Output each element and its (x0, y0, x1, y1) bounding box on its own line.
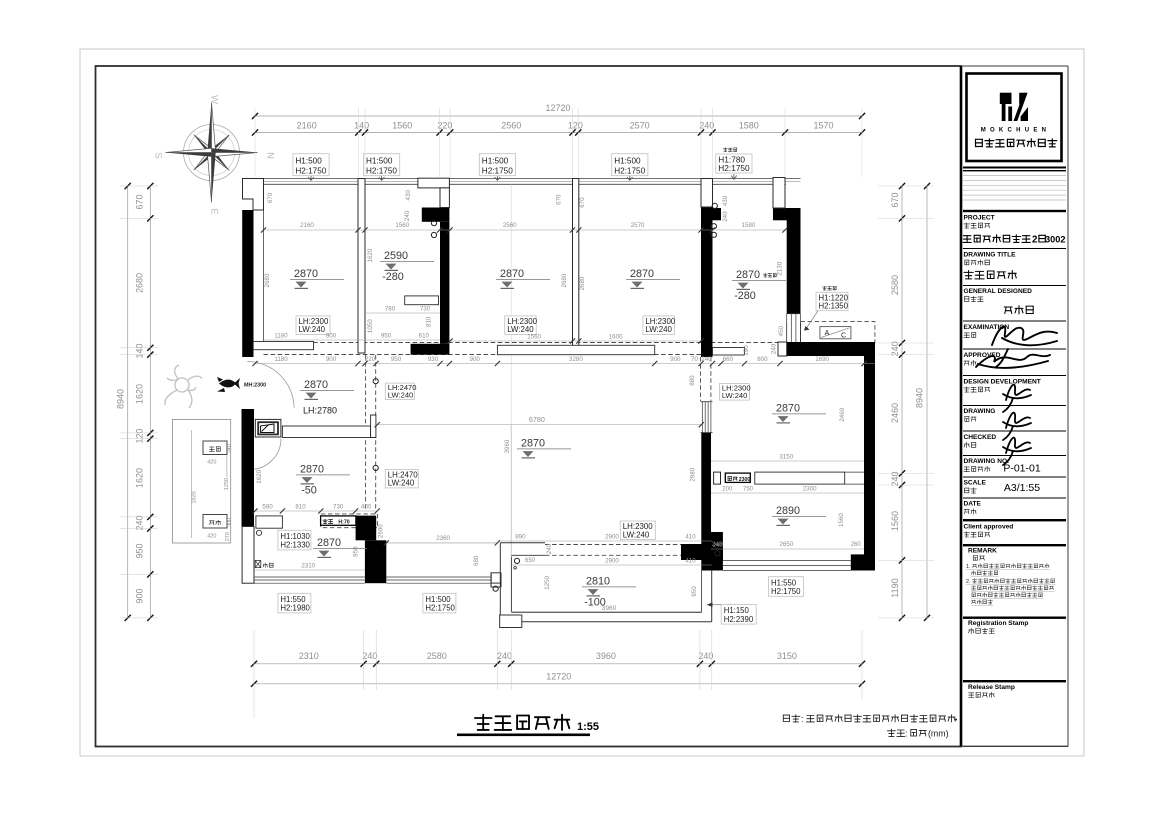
svg-text:H1:500: H1:500 (482, 157, 509, 166)
svg-text:70: 70 (691, 356, 698, 363)
svg-text:240: 240 (713, 543, 724, 549)
svg-text:900: 900 (470, 356, 481, 363)
svg-text:140: 140 (354, 121, 369, 131)
svg-text:H2:1750: H2:1750 (482, 167, 513, 176)
svg-text:2310: 2310 (299, 651, 319, 661)
svg-text:LW:240: LW:240 (645, 325, 672, 334)
svg-text:670: 670 (579, 197, 586, 208)
svg-text:1580: 1580 (742, 222, 756, 229)
svg-text:2130: 2130 (776, 261, 783, 275)
svg-text:1820: 1820 (192, 491, 198, 503)
svg-text:H2:1750: H2:1750 (366, 167, 397, 176)
svg-text:H1:500: H1:500 (295, 157, 322, 166)
svg-text:H1:150: H1:150 (724, 606, 750, 615)
svg-text:2: 2 (1032, 235, 1038, 246)
svg-text:680: 680 (473, 555, 480, 566)
svg-text:2570: 2570 (631, 222, 645, 229)
svg-text:3150: 3150 (779, 453, 793, 460)
svg-text:DRAWING NO.: DRAWING NO. (964, 458, 1010, 465)
svg-text:900: 900 (326, 332, 337, 339)
svg-text:W: W (209, 95, 220, 104)
svg-text:2680: 2680 (561, 273, 568, 287)
svg-text:1580: 1580 (739, 121, 759, 131)
svg-text::: : (905, 729, 907, 739)
svg-text:1:55: 1:55 (577, 721, 599, 733)
svg-text:240: 240 (227, 444, 233, 453)
svg-text:LW:240: LW:240 (722, 391, 747, 400)
svg-text:2560: 2560 (501, 121, 521, 131)
svg-text:1560: 1560 (838, 513, 845, 527)
svg-text:410: 410 (685, 557, 696, 564)
svg-text:2.: 2. (966, 579, 971, 585)
svg-text:950: 950 (352, 546, 359, 557)
svg-text:N: N (265, 152, 276, 159)
svg-text:3150: 3150 (777, 651, 797, 661)
svg-text:1190: 1190 (890, 578, 900, 597)
svg-text:H:70: H:70 (338, 520, 349, 526)
svg-text:(mm): (mm) (928, 729, 949, 739)
svg-text:2900: 2900 (605, 533, 619, 540)
svg-text:H2:1750: H2:1750 (614, 167, 645, 176)
svg-text:930: 930 (428, 356, 439, 363)
svg-text:-280: -280 (382, 271, 404, 283)
svg-text:1620: 1620 (367, 248, 374, 262)
svg-text:1560: 1560 (890, 511, 900, 531)
svg-text:240: 240 (722, 211, 729, 222)
svg-text:2870: 2870 (521, 438, 545, 450)
svg-text:400: 400 (361, 503, 372, 510)
svg-text:C: C (841, 333, 846, 340)
svg-text:750: 750 (743, 486, 754, 492)
svg-text:H1:550: H1:550 (771, 578, 797, 587)
svg-text:CHECKED: CHECKED (964, 434, 997, 441)
svg-text:2980: 2980 (689, 467, 696, 481)
svg-text:880: 880 (689, 375, 696, 386)
svg-text:1600: 1600 (609, 333, 623, 340)
svg-text:240: 240 (698, 651, 713, 661)
svg-text:2680: 2680 (264, 273, 271, 287)
svg-text:1050: 1050 (367, 319, 374, 333)
svg-text:2160: 2160 (297, 121, 317, 131)
svg-text:H2:1350: H2:1350 (819, 302, 849, 311)
svg-text:H2:1750: H2:1750 (295, 167, 326, 176)
svg-text:H2:1750: H2:1750 (425, 604, 455, 613)
svg-text:PROJECT: PROJECT (964, 215, 995, 222)
svg-text:900: 900 (670, 356, 681, 363)
svg-text:900: 900 (135, 588, 145, 603)
svg-text:2650: 2650 (779, 541, 793, 548)
svg-text:240: 240 (699, 121, 714, 131)
svg-text:240: 240 (362, 651, 377, 661)
svg-text:2870: 2870 (294, 268, 318, 280)
svg-text:240: 240 (546, 543, 553, 554)
svg-text:H2:1330: H2:1330 (280, 541, 310, 550)
svg-text:H2:2390: H2:2390 (724, 615, 754, 624)
svg-text:H1:550: H1:550 (280, 595, 306, 604)
svg-text:H1:500: H1:500 (366, 157, 393, 166)
svg-text:2590: 2590 (384, 250, 408, 262)
svg-text:H1:500: H1:500 (425, 595, 451, 604)
svg-text:420: 420 (207, 534, 216, 540)
svg-text:2300: 2300 (803, 485, 817, 492)
svg-text:DRAWING TITLE: DRAWING TITLE (964, 252, 1017, 259)
svg-text:12720: 12720 (546, 671, 571, 681)
svg-text:1180: 1180 (274, 356, 288, 363)
svg-text:3960: 3960 (596, 651, 616, 661)
svg-text:2870: 2870 (736, 269, 760, 281)
svg-text:2580: 2580 (427, 651, 447, 661)
svg-text:LW:240: LW:240 (623, 530, 650, 539)
svg-text:Registration Stamp: Registration Stamp (968, 620, 1028, 627)
svg-text:LH:2780: LH:2780 (303, 406, 337, 416)
svg-text:2460: 2460 (890, 403, 900, 423)
svg-text:580: 580 (262, 503, 273, 510)
svg-text:2870: 2870 (500, 268, 524, 280)
svg-text:1.: 1. (966, 564, 971, 570)
svg-text:450: 450 (778, 325, 785, 336)
svg-text::: : (801, 714, 803, 724)
svg-text:200: 200 (722, 486, 733, 492)
svg-text:3280: 3280 (569, 356, 583, 363)
svg-text:1250: 1250 (224, 478, 230, 490)
svg-text:DESIGN DEVELOPMENT: DESIGN DEVELOPMENT (964, 379, 1041, 386)
svg-text:1690: 1690 (815, 356, 829, 363)
svg-text:8940: 8940 (116, 389, 126, 409)
svg-text:2870: 2870 (776, 403, 800, 415)
svg-text:2890: 2890 (776, 505, 800, 517)
svg-text:240: 240 (404, 210, 411, 221)
svg-text:240: 240 (890, 471, 900, 486)
svg-text:H2:1750: H2:1750 (771, 587, 801, 596)
svg-text:LW:240: LW:240 (388, 479, 415, 488)
svg-text:1620: 1620 (135, 468, 145, 488)
svg-text:670: 670 (890, 192, 900, 207)
svg-text:SCALE: SCALE (964, 480, 987, 487)
svg-text:650: 650 (525, 558, 536, 564)
svg-text:-280: -280 (734, 290, 756, 302)
svg-text:240: 240 (890, 341, 900, 356)
svg-text:LW:240: LW:240 (299, 325, 326, 334)
svg-text:E: E (209, 208, 220, 214)
svg-text:2160: 2160 (300, 222, 314, 229)
svg-text:670: 670 (556, 194, 563, 205)
svg-text:730: 730 (420, 305, 431, 312)
svg-text:1620: 1620 (256, 469, 263, 483)
svg-text:260: 260 (851, 542, 862, 548)
svg-text:670: 670 (135, 194, 145, 209)
svg-text:950: 950 (391, 356, 402, 363)
svg-text:2810: 2810 (586, 576, 610, 588)
svg-text:1620: 1620 (135, 384, 145, 404)
svg-text:420: 420 (207, 460, 216, 466)
svg-text:780: 780 (385, 305, 396, 312)
svg-text:950: 950 (691, 586, 698, 597)
svg-text:660: 660 (723, 356, 734, 363)
svg-text:DATE: DATE (964, 501, 982, 508)
svg-text:3002: 3002 (1045, 235, 1065, 245)
svg-text:6780: 6780 (529, 415, 545, 424)
svg-text:2460: 2460 (839, 407, 846, 421)
svg-text:Client approved: Client approved (964, 524, 1014, 531)
svg-text:GENERAL DESIGNED: GENERAL DESIGNED (964, 288, 1033, 295)
svg-text:120: 120 (135, 428, 145, 443)
svg-text:2600: 2600 (377, 524, 384, 538)
svg-text:810: 810 (295, 503, 306, 510)
svg-text:2300: 2300 (739, 477, 751, 483)
svg-text:12720: 12720 (545, 103, 570, 113)
svg-text:H1:500: H1:500 (614, 157, 641, 166)
svg-text:2870: 2870 (300, 464, 324, 476)
svg-text:2560: 2560 (503, 222, 517, 229)
svg-text:900: 900 (326, 356, 337, 363)
svg-text:1180: 1180 (274, 332, 288, 339)
svg-text:2870: 2870 (304, 379, 328, 391)
svg-text:2310: 2310 (301, 562, 315, 569)
svg-text:270: 270 (225, 532, 231, 541)
svg-text:2580: 2580 (890, 275, 900, 295)
svg-text:S: S (153, 152, 164, 158)
svg-text:610: 610 (419, 332, 430, 339)
svg-text:1560: 1560 (395, 222, 409, 229)
svg-text:800: 800 (757, 356, 768, 363)
svg-text:240: 240 (497, 651, 512, 661)
svg-text:1560: 1560 (392, 121, 412, 131)
svg-text:DRAWING: DRAWING (964, 408, 996, 415)
svg-text:P-01-01: P-01-01 (1003, 463, 1041, 475)
svg-text:-50: -50 (301, 485, 317, 497)
svg-text:H1:1030: H1:1030 (280, 532, 310, 541)
svg-text:1560: 1560 (527, 333, 541, 340)
svg-text:890: 890 (515, 533, 526, 540)
svg-text:A: A (825, 330, 830, 337)
svg-text:810: 810 (426, 316, 433, 327)
svg-text:8940: 8940 (915, 388, 925, 408)
svg-text:MH:2300: MH:2300 (244, 383, 266, 389)
svg-text:M O K C H U E N: M O K C H U E N (981, 128, 1048, 134)
svg-text:H2:1750: H2:1750 (718, 163, 750, 173)
svg-text:300: 300 (227, 518, 233, 527)
svg-text:2900: 2900 (605, 557, 619, 564)
svg-text:1570: 1570 (813, 121, 833, 131)
svg-text:140: 140 (135, 343, 145, 358)
svg-text:410: 410 (685, 533, 696, 540)
svg-text:A3/1:55: A3/1:55 (1004, 482, 1040, 494)
svg-text:2570: 2570 (630, 121, 650, 131)
svg-text:2870: 2870 (317, 537, 341, 549)
svg-text:670: 670 (267, 192, 274, 203)
svg-text:2680: 2680 (579, 276, 586, 290)
svg-text:REMARK: REMARK (968, 548, 997, 555)
svg-text:3960: 3960 (504, 439, 511, 453)
svg-text:730: 730 (333, 503, 344, 510)
svg-text:2680: 2680 (135, 273, 145, 293)
svg-text:1250: 1250 (544, 575, 551, 589)
svg-text:H2:1980: H2:1980 (280, 604, 310, 613)
svg-text:190: 190 (743, 345, 750, 356)
svg-text:3960: 3960 (602, 605, 617, 612)
svg-text:950: 950 (135, 543, 145, 558)
svg-text:950: 950 (381, 332, 392, 339)
svg-text:120: 120 (568, 121, 583, 131)
svg-text:LW:240: LW:240 (388, 390, 413, 399)
svg-text:2870: 2870 (630, 268, 654, 280)
svg-text:240: 240 (771, 343, 778, 354)
svg-text:430: 430 (405, 190, 412, 201)
svg-text:2360: 2360 (436, 535, 450, 542)
svg-text:430: 430 (722, 195, 729, 206)
svg-text:Release Stamp: Release Stamp (968, 684, 1015, 691)
